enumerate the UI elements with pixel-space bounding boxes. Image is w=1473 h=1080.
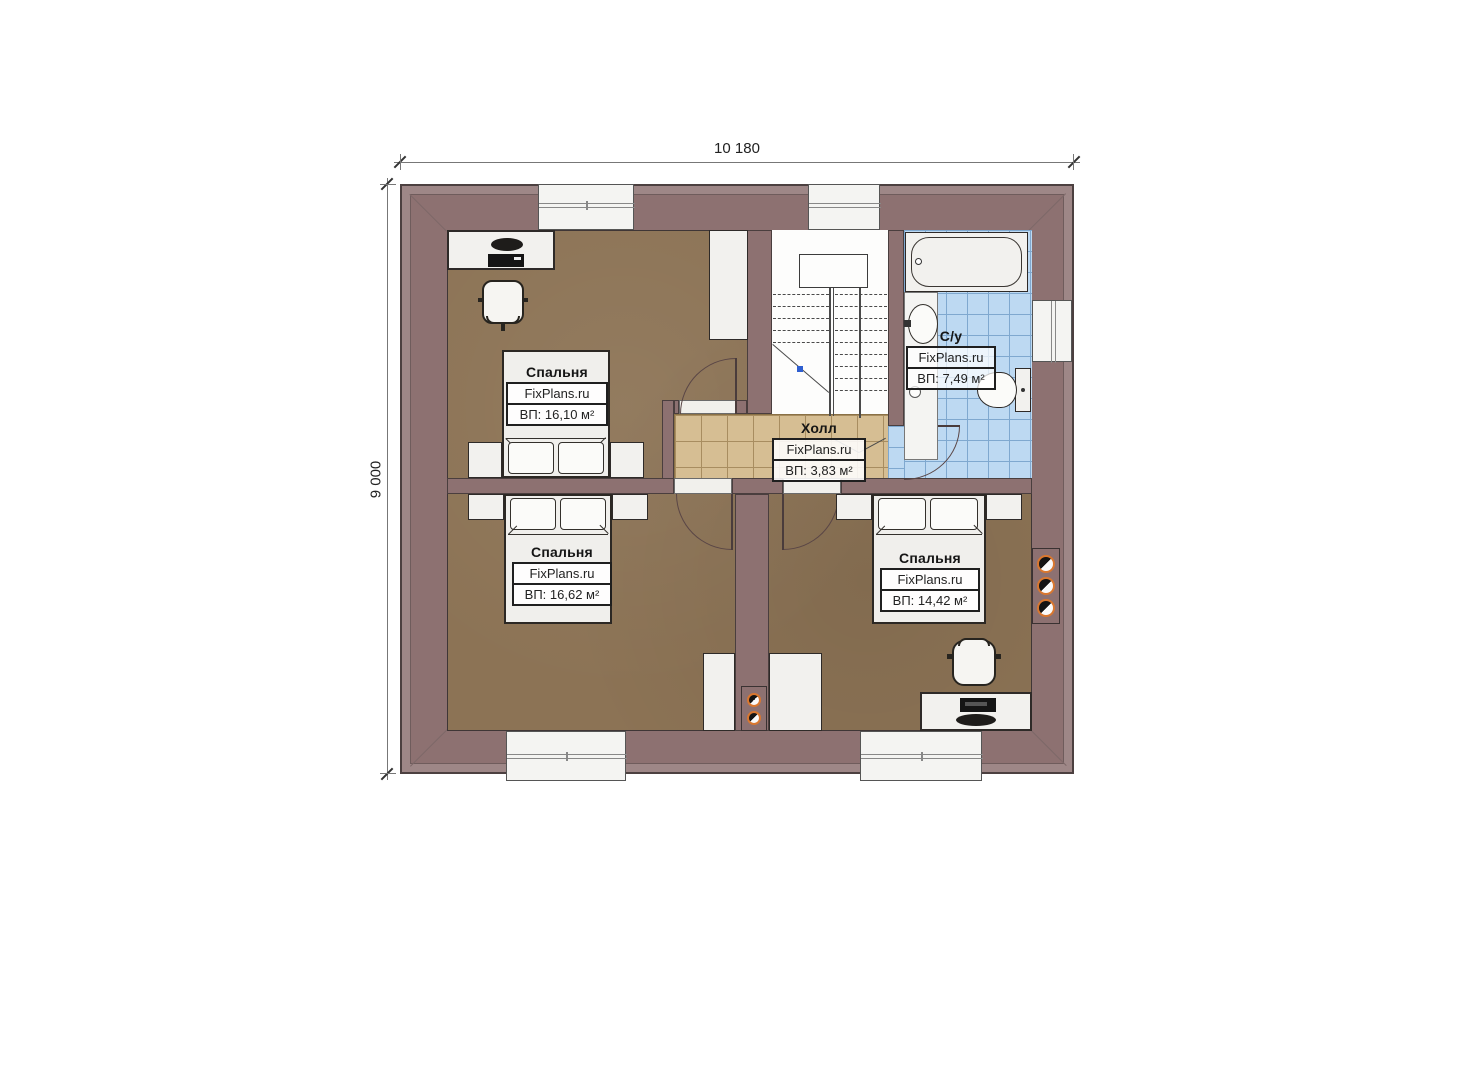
- chair-arm: [947, 654, 954, 659]
- window-glass-line: [1055, 301, 1056, 363]
- dimension-left-label: 9 000: [368, 450, 385, 510]
- stair-tread: [835, 378, 887, 379]
- window-bathroom-right: [1032, 300, 1072, 362]
- door-leaf: [731, 494, 733, 550]
- pillow: [878, 498, 926, 530]
- fixplans-watermark: FixPlans.ru: [774, 440, 864, 459]
- stair-tread: [835, 306, 887, 307]
- nightstand: [836, 494, 872, 520]
- fixplans-watermark: FixPlans.ru: [908, 348, 994, 367]
- toilet-tank: [1015, 368, 1031, 412]
- office-chair: [952, 640, 996, 686]
- fixplans-watermark: FixPlans.ru: [882, 570, 978, 589]
- window-mullion: [566, 752, 568, 761]
- window-glass-line: [1051, 301, 1052, 363]
- sink-tap: [904, 320, 911, 327]
- flue-circle: [1037, 599, 1055, 617]
- room-label-bedroom-br: Спальня FixPlans.ru ВП: 14,42 м²: [880, 550, 980, 612]
- dimension-left-line: [387, 178, 388, 780]
- stair-landing: [799, 254, 868, 288]
- wall-bedroom-stairs: [747, 230, 772, 414]
- stair-walk-line: [859, 288, 861, 418]
- stair-divider: [833, 288, 834, 416]
- blanket-fold: [876, 534, 982, 535]
- office-chair: [482, 280, 524, 324]
- flue-circle: [1037, 555, 1055, 573]
- dimension-extension: [380, 773, 396, 774]
- nightstand: [610, 442, 644, 478]
- room-label-bathroom: С/у FixPlans.ru ВП: 7,49 м²: [906, 328, 996, 390]
- dimension-left: 9 000: [360, 184, 394, 774]
- room-area: ВП: 16,10 м²: [508, 403, 606, 424]
- room-info-table: FixPlans.ru ВП: 16,62 м²: [512, 562, 612, 606]
- bathroom-door-threshold: [888, 426, 904, 478]
- chair-arm: [522, 298, 528, 302]
- window-glass-line: [809, 203, 881, 204]
- chair-back: [958, 638, 990, 646]
- room-area: ВП: 14,42 м²: [882, 589, 978, 610]
- nightstand: [468, 494, 504, 520]
- fixplans-watermark: FixPlans.ru: [508, 384, 606, 403]
- closet-bottom-right: [769, 653, 822, 731]
- room-name: Спальня: [506, 364, 608, 380]
- blanket-fold: [508, 534, 608, 535]
- room-name: Спальня: [880, 550, 980, 566]
- wall-central-segment: [447, 478, 674, 494]
- room-area: ВП: 3,83 м²: [774, 459, 864, 480]
- pillow: [930, 498, 978, 530]
- nightstand: [986, 494, 1022, 520]
- room-label-hall: Холл FixPlans.ru ВП: 3,83 м²: [772, 420, 866, 482]
- computer-icon: [488, 254, 524, 267]
- nightstand: [612, 494, 648, 520]
- room-name: Спальня: [512, 544, 612, 560]
- closet-bottom-left: [703, 653, 735, 731]
- window-mullion: [921, 752, 923, 761]
- staircase: [772, 230, 888, 414]
- computer-slot: [514, 257, 521, 260]
- room-name: С/у: [906, 328, 996, 344]
- room-name: Холл: [772, 420, 866, 436]
- window-bottom-left: [506, 731, 626, 781]
- window-glass-line: [809, 207, 881, 208]
- chair-arm: [994, 654, 1001, 659]
- room-area: ВП: 16,62 м²: [514, 583, 610, 604]
- desk: [920, 692, 1032, 731]
- stair-tread: [773, 342, 829, 343]
- chair-base: [501, 324, 505, 331]
- window-bottom-right: [860, 731, 982, 781]
- nightstand: [468, 442, 502, 478]
- desk: [447, 230, 555, 270]
- floor-plan-canvas: 10 180 9 000: [0, 0, 1473, 1080]
- stair-tread: [835, 354, 887, 355]
- fixplans-watermark: FixPlans.ru: [514, 564, 610, 583]
- window-top-stairwell: [808, 184, 880, 230]
- wall-hall-top-segment: [736, 400, 747, 414]
- room-info-table: FixPlans.ru ВП: 14,42 м²: [880, 568, 980, 612]
- stair-tread: [773, 330, 829, 331]
- pillow: [508, 442, 554, 474]
- stair-tread: [835, 330, 887, 331]
- stair-tread: [835, 390, 887, 391]
- chair-back: [486, 316, 520, 324]
- stair-marker-dot: [797, 366, 803, 372]
- bathtub: [905, 232, 1028, 292]
- dimension-extension: [400, 154, 401, 170]
- monitor-icon: [960, 698, 996, 712]
- stair-tread: [773, 294, 829, 295]
- stair-tread: [773, 306, 829, 307]
- stair-tread: [835, 318, 887, 319]
- stair-tread: [835, 294, 887, 295]
- window-top-left: [538, 184, 634, 230]
- room-label-bedroom-tl: Спальня FixPlans.ru ВП: 16,10 м²: [506, 364, 608, 426]
- door-opening-bedroom-bl: [674, 478, 732, 494]
- bathtub-basin: [911, 237, 1022, 287]
- dimension-extension: [1073, 154, 1074, 170]
- bathtub-faucet: [915, 258, 922, 265]
- stair-tread: [835, 366, 887, 367]
- toilet-button: [1021, 388, 1025, 392]
- room-info-table: FixPlans.ru ВП: 7,49 м²: [906, 346, 996, 390]
- pillow: [558, 442, 604, 474]
- computer-slot: [965, 702, 987, 706]
- flue-circle: [1037, 577, 1055, 595]
- flue-circle: [747, 711, 761, 725]
- wall-central-segment: [841, 478, 1032, 494]
- dimension-top-line: [394, 162, 1080, 163]
- monitor-icon: [491, 238, 523, 251]
- stair-divider: [829, 288, 831, 416]
- blanket-fold: [506, 438, 606, 439]
- wall-stairs-bathroom: [888, 230, 904, 426]
- dimension-top-label: 10 180: [400, 140, 1074, 157]
- dimension-top: 10 180: [400, 140, 1074, 170]
- room-info-table: FixPlans.ru ВП: 16,10 м²: [506, 382, 608, 426]
- floor-plan: Спальня FixPlans.ru ВП: 16,10 м² Холл Fi…: [400, 184, 1074, 774]
- closet-top: [709, 230, 748, 340]
- door-leaf: [782, 494, 784, 550]
- room-area: ВП: 7,49 м²: [908, 367, 994, 388]
- room-info-table: FixPlans.ru ВП: 3,83 м²: [772, 438, 866, 482]
- dimension-extension: [380, 184, 396, 185]
- keyboard-icon: [956, 714, 996, 726]
- stair-tread: [835, 342, 887, 343]
- flue-circle: [747, 693, 761, 707]
- window-mullion: [586, 201, 588, 210]
- stair-tread: [773, 318, 829, 319]
- room-label-bedroom-bl: Спальня FixPlans.ru ВП: 16,62 м²: [512, 544, 612, 606]
- chair-arm: [478, 298, 484, 302]
- wall-hall-left: [662, 400, 674, 480]
- door-leaf: [735, 358, 737, 414]
